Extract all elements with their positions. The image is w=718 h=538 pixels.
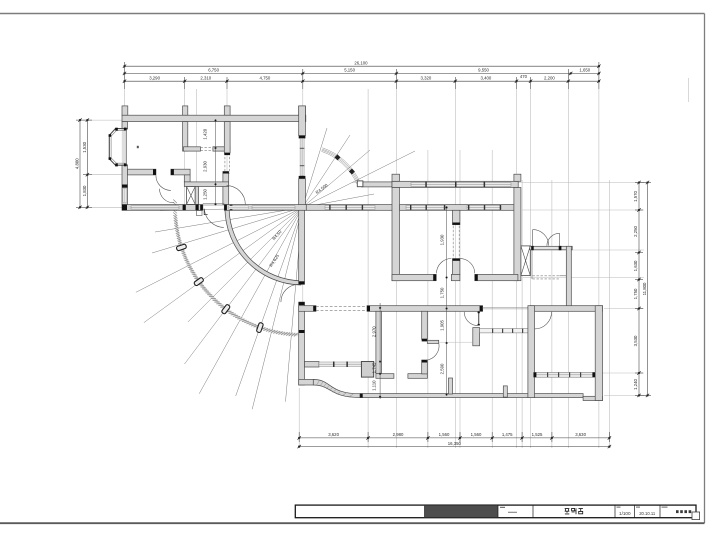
svg-text:3,530: 3,530	[633, 335, 638, 346]
svg-text:1,650: 1,650	[579, 68, 590, 73]
svg-text:6,750: 6,750	[208, 68, 219, 73]
svg-text:4,800: 4,800	[74, 158, 79, 169]
svg-text:2,200: 2,200	[544, 75, 555, 80]
svg-text:2,310: 2,310	[200, 75, 211, 80]
svg-text:3,320: 3,320	[421, 75, 432, 80]
svg-text:1,110: 1,110	[372, 380, 377, 391]
svg-text:1,560: 1,560	[471, 432, 482, 437]
svg-text:1,240: 1,240	[633, 379, 638, 390]
svg-text:11,800: 11,800	[642, 282, 647, 295]
svg-text:1,475: 1,475	[502, 432, 513, 437]
svg-text:1,250: 1,250	[203, 189, 208, 200]
svg-text:470: 470	[520, 74, 528, 79]
svg-text:1/100: 1/100	[619, 511, 631, 516]
svg-text:1,830: 1,830	[82, 185, 87, 196]
svg-text:3,630: 3,630	[575, 432, 586, 437]
svg-text:2,970: 2,970	[372, 326, 377, 337]
svg-text:3,400: 3,400	[481, 75, 492, 80]
svg-text:1,905: 1,905	[440, 320, 445, 331]
svg-text:1,750: 1,750	[440, 287, 445, 298]
svg-text:2,980: 2,980	[393, 432, 404, 437]
svg-text:4,750: 4,750	[260, 75, 271, 80]
svg-text:1,750: 1,750	[633, 288, 638, 299]
svg-text:1,530: 1,530	[82, 141, 87, 152]
svg-text:1,525: 1,525	[532, 432, 543, 437]
svg-text:2,250: 2,250	[633, 226, 638, 237]
svg-text:2,590: 2,590	[440, 363, 445, 374]
svg-text:1,630: 1,630	[633, 260, 638, 271]
svg-text:3,620: 3,620	[328, 432, 339, 437]
svg-text:16,350: 16,350	[448, 441, 462, 446]
svg-text:1,930: 1,930	[440, 234, 445, 245]
svg-text:1,560: 1,560	[439, 432, 450, 437]
svg-text:3,290: 3,290	[149, 75, 160, 80]
svg-text:5,150: 5,150	[344, 68, 355, 73]
svg-text:20.10.11: 20.10.11	[639, 511, 656, 516]
svg-text:1,570: 1,570	[633, 191, 638, 202]
svg-text:9,550: 9,550	[478, 68, 489, 73]
svg-text:2,930: 2,930	[203, 161, 208, 172]
svg-text:1,745: 1,745	[372, 362, 377, 373]
svg-text:26,100: 26,100	[354, 60, 368, 65]
svg-text:1,420: 1,420	[203, 128, 208, 139]
